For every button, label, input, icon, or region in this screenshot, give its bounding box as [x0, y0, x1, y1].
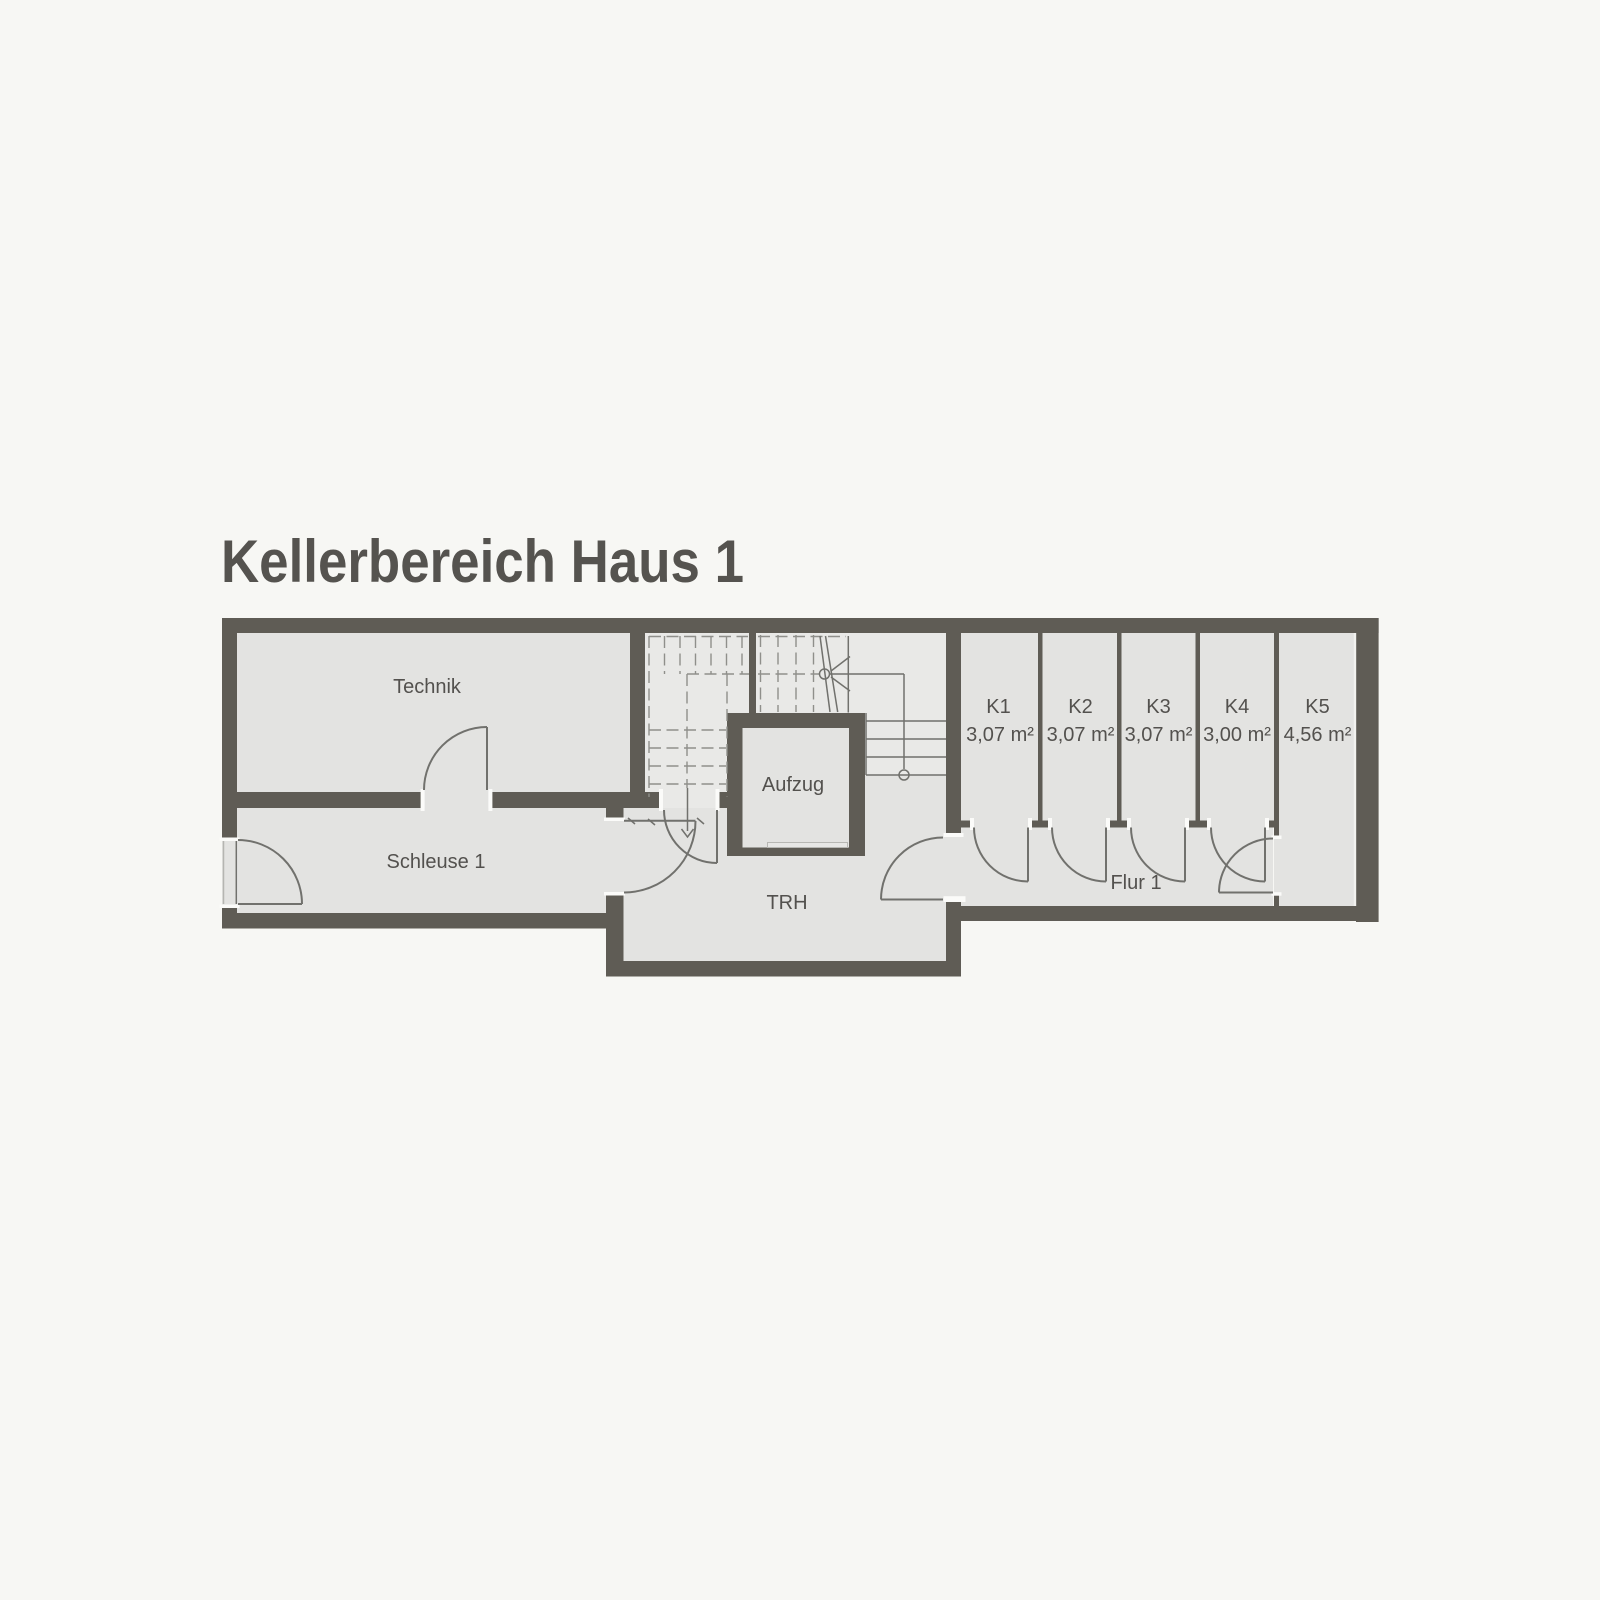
- svg-text:K5: K5: [1305, 696, 1329, 718]
- svg-text:K3: K3: [1146, 696, 1170, 718]
- svg-text:K2: K2: [1068, 696, 1092, 718]
- svg-text:Aufzug: Aufzug: [762, 774, 824, 796]
- svg-text:3,07 m²: 3,07 m²: [966, 724, 1034, 746]
- svg-text:4,56 m²: 4,56 m²: [1284, 724, 1352, 746]
- svg-text:K4: K4: [1225, 696, 1249, 718]
- svg-text:Schleuse 1: Schleuse 1: [387, 851, 486, 873]
- svg-text:TRH: TRH: [766, 892, 807, 914]
- svg-text:3,07 m²: 3,07 m²: [1125, 724, 1193, 746]
- svg-text:Technik: Technik: [393, 676, 462, 698]
- svg-text:Flur 1: Flur 1: [1110, 872, 1161, 894]
- svg-text:Kellerbereich Haus 1: Kellerbereich Haus 1: [221, 528, 744, 595]
- svg-text:K1: K1: [986, 696, 1010, 718]
- svg-text:3,00 m²: 3,00 m²: [1203, 724, 1271, 746]
- svg-text:3,07 m²: 3,07 m²: [1047, 724, 1115, 746]
